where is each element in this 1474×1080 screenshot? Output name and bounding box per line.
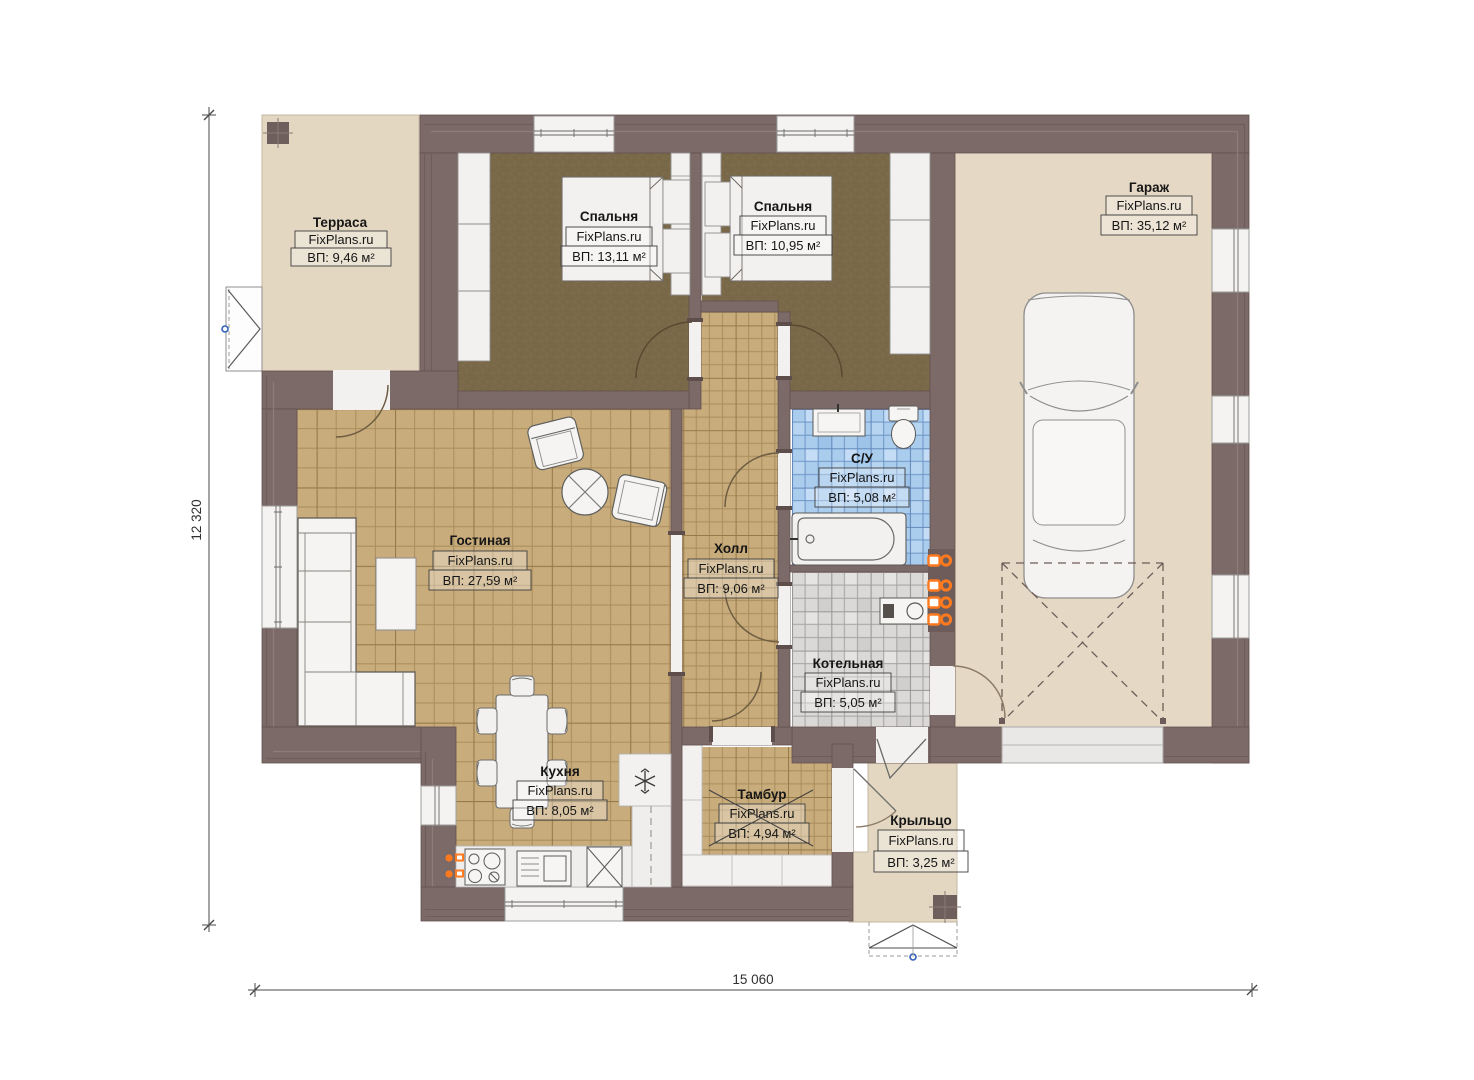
svg-text:12 320: 12 320 <box>189 499 204 540</box>
svg-text:Гостиная: Гостиная <box>449 533 510 548</box>
svg-text:ВП: 35,12 м²: ВП: 35,12 м² <box>1112 218 1187 233</box>
svg-text:Спальня: Спальня <box>580 209 638 224</box>
svg-text:FixPlans.ru: FixPlans.ru <box>698 561 763 576</box>
svg-text:FixPlans.ru: FixPlans.ru <box>308 232 373 247</box>
svg-text:FixPlans.ru: FixPlans.ru <box>750 218 815 233</box>
svg-text:Тамбур: Тамбур <box>738 787 787 802</box>
svg-text:FixPlans.ru: FixPlans.ru <box>527 783 592 798</box>
svg-text:ВП: 27,59 м²: ВП: 27,59 м² <box>443 573 518 588</box>
svg-text:FixPlans.ru: FixPlans.ru <box>888 833 953 848</box>
svg-text:FixPlans.ru: FixPlans.ru <box>447 553 512 568</box>
svg-text:ВП: 5,05 м²: ВП: 5,05 м² <box>814 695 882 710</box>
svg-text:Спальня: Спальня <box>754 199 812 214</box>
svg-text:ВП: 4,94 м²: ВП: 4,94 м² <box>728 826 796 841</box>
svg-text:FixPlans.ru: FixPlans.ru <box>576 229 641 244</box>
svg-text:FixPlans.ru: FixPlans.ru <box>829 470 894 485</box>
svg-text:ВП: 9,06 м²: ВП: 9,06 м² <box>697 581 765 596</box>
svg-text:15 060: 15 060 <box>732 972 773 987</box>
svg-text:ВП: 5,08 м²: ВП: 5,08 м² <box>828 490 896 505</box>
svg-text:ВП: 8,05 м²: ВП: 8,05 м² <box>526 803 594 818</box>
svg-text:ВП: 9,46 м²: ВП: 9,46 м² <box>307 250 375 265</box>
svg-text:ВП: 10,95 м²: ВП: 10,95 м² <box>746 238 821 253</box>
svg-text:FixPlans.ru: FixPlans.ru <box>1116 198 1181 213</box>
svg-text:Крыльцо: Крыльцо <box>890 813 951 828</box>
svg-text:Терраса: Терраса <box>313 215 368 230</box>
svg-text:Котельная: Котельная <box>813 656 884 671</box>
svg-text:Холл: Холл <box>714 541 748 556</box>
svg-text:FixPlans.ru: FixPlans.ru <box>815 675 880 690</box>
svg-text:Кухня: Кухня <box>540 764 579 779</box>
svg-text:ВП: 13,11 м²: ВП: 13,11 м² <box>572 249 646 264</box>
svg-text:ВП: 3,25 м²: ВП: 3,25 м² <box>887 855 955 870</box>
svg-text:С/У: С/У <box>851 451 874 466</box>
svg-text:Гараж: Гараж <box>1129 180 1170 195</box>
